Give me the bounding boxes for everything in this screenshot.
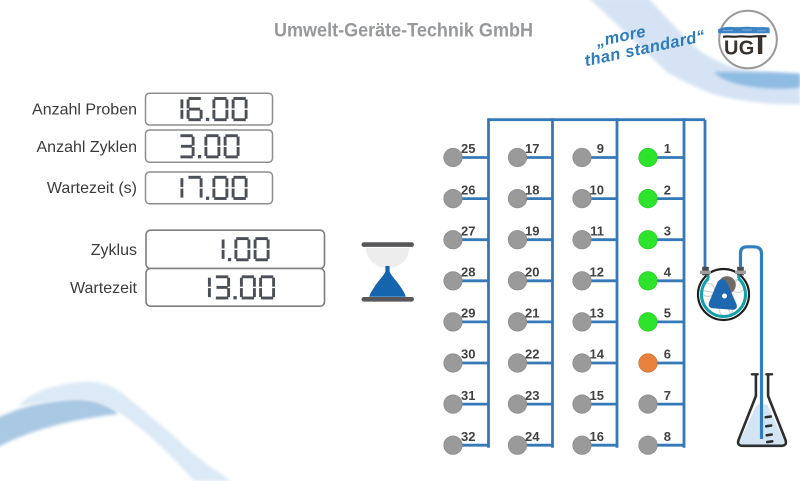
svg-text:Wartezeit (s): Wartezeit (s): [47, 180, 137, 197]
svg-text:3: 3: [664, 223, 671, 238]
svg-text:Wartezeit: Wartezeit: [70, 280, 138, 297]
svg-text:30: 30: [461, 347, 475, 362]
svg-text:9: 9: [597, 141, 604, 156]
svg-text:27: 27: [461, 223, 475, 238]
svg-text:14: 14: [590, 347, 605, 362]
svg-text:17: 17: [525, 141, 539, 156]
svg-text:20: 20: [525, 265, 539, 280]
svg-text:13: 13: [590, 306, 604, 321]
svg-text:2: 2: [664, 182, 671, 197]
svg-text:24: 24: [525, 429, 540, 444]
svg-text:16: 16: [590, 429, 604, 444]
svg-text:Zyklus: Zyklus: [91, 242, 137, 259]
svg-text:12: 12: [590, 265, 604, 280]
svg-text:4: 4: [664, 265, 672, 280]
svg-text:25: 25: [461, 141, 475, 156]
svg-text:19: 19: [525, 223, 539, 238]
svg-text:15: 15: [590, 388, 604, 403]
svg-text:26: 26: [461, 182, 475, 197]
svg-text:18: 18: [525, 182, 539, 197]
svg-text:7: 7: [664, 388, 671, 403]
svg-text:23: 23: [525, 388, 539, 403]
svg-text:1: 1: [664, 141, 671, 156]
svg-text:32: 32: [461, 429, 475, 444]
svg-text:8: 8: [664, 429, 671, 444]
svg-text:28: 28: [461, 265, 475, 280]
svg-text:UG: UG: [724, 38, 755, 60]
svg-text:Umwelt-Geräte-Technik GmbH: Umwelt-Geräte-Technik GmbH: [274, 20, 533, 42]
svg-text:31: 31: [461, 388, 475, 403]
svg-text:5: 5: [664, 306, 671, 321]
svg-text:10: 10: [590, 182, 604, 197]
svg-text:6: 6: [664, 347, 671, 362]
svg-text:22: 22: [525, 347, 539, 362]
svg-text:21: 21: [525, 306, 539, 321]
svg-text:29: 29: [461, 306, 475, 321]
svg-text:Anzahl Zyklen: Anzahl Zyklen: [37, 139, 138, 156]
svg-text:11: 11: [590, 223, 604, 238]
svg-text:Anzahl Proben: Anzahl Proben: [32, 101, 137, 118]
